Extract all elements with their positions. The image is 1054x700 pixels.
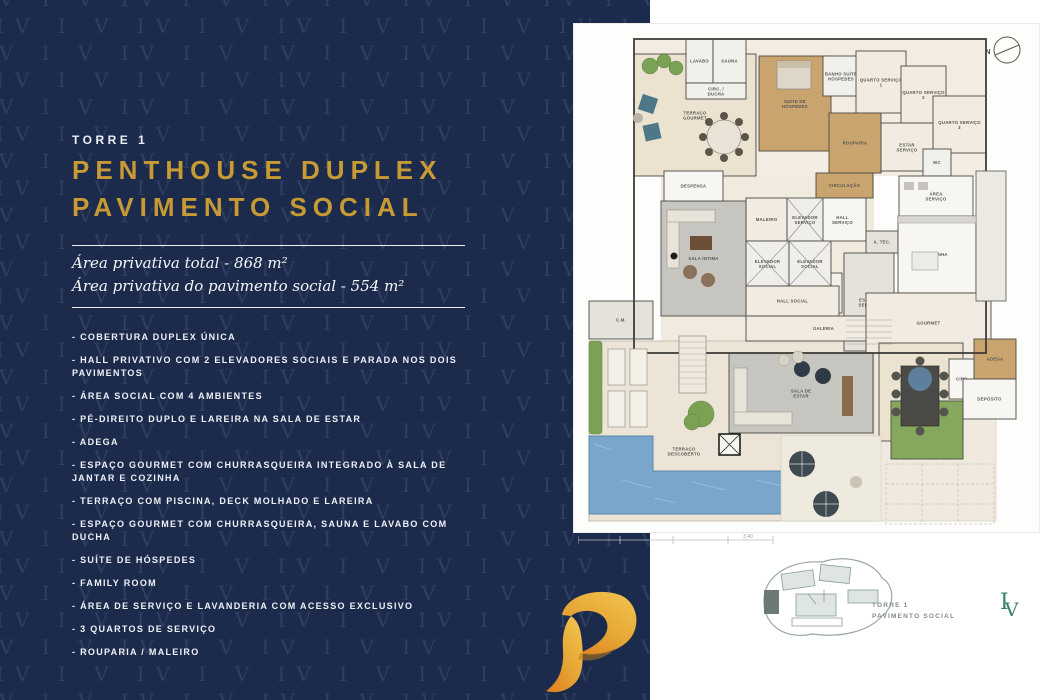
room-despensa: DESPENSA	[664, 171, 723, 201]
keyplan-floor: PAVIMENTO SOCIAL	[872, 611, 955, 622]
svg-text:CIRC. /DUCHA: CIRC. /DUCHA	[708, 87, 725, 97]
room-circ-ducha: CIRC. /DUCHA	[686, 83, 746, 99]
svg-text:GALERIA: GALERIA	[813, 326, 834, 331]
svg-text:N: N	[985, 49, 990, 56]
duplex-stair	[679, 336, 706, 393]
feature-item-9: SUÍTE DE HÓSPEDES	[72, 554, 477, 567]
room-maleiro: MALEIRO	[746, 198, 787, 241]
feature-item-12: 3 QUARTOS DE SERVIÇO	[72, 623, 477, 636]
svg-text:CIRCULAÇÃO: CIRCULAÇÃO	[829, 183, 861, 188]
keyplan-caption: TORRE 1 PAVIMENTO SOCIAL	[872, 600, 955, 622]
area-total: Área privativa total - 868 m²	[72, 252, 404, 275]
room-a-tec-: A. TEC.	[866, 231, 898, 253]
svg-text:SALA ÍNTIMA: SALA ÍNTIMA	[688, 256, 718, 261]
svg-text:DESPENSA: DESPENSA	[681, 184, 707, 189]
room-dep-sito: DEPÓSITO	[963, 379, 1016, 419]
feature-item-6: ESPAÇO GOURMET COM CHURRASQUEIRA INTEGRA…	[72, 459, 477, 485]
divider-top	[72, 245, 465, 246]
svg-text:ESTARSERVIÇO: ESTARSERVIÇO	[896, 143, 917, 153]
room-circula-o: CIRCULAÇÃO	[816, 173, 873, 198]
site-key-plan	[752, 550, 922, 645]
room-quarto-servi-o-1: QUARTO SERVIÇO1	[856, 51, 906, 113]
brand-monogram: IV	[1000, 592, 1022, 614]
room-lavabo: LAVABO	[686, 39, 713, 83]
svg-text:LAVABO: LAVABO	[690, 59, 709, 64]
svg-text:C.M.: C.M.	[616, 318, 626, 323]
svg-text:A. TEC.: A. TEC.	[873, 240, 890, 245]
gold-p-logo	[540, 583, 646, 700]
page-title-line1: PENTHOUSE DUPLEX	[72, 152, 443, 189]
room-quarto-servi-o-3: QUARTO SERVIÇO3	[933, 96, 986, 153]
feature-item-4: PÉ-DIREITO DUPLO E LAREIRA NA SALA DE ES…	[72, 413, 477, 426]
outdoor-dining	[781, 436, 881, 521]
room-adega: ADEGA	[974, 339, 1016, 379]
feature-item-10: FAMILY ROOM	[72, 577, 477, 590]
divider-bottom	[72, 307, 465, 308]
feature-item-7: TERRAÇO COM PISCINA, DECK MOLHADO E LARE…	[72, 495, 477, 508]
svg-text:WC: WC	[933, 160, 941, 165]
fireplace	[719, 434, 740, 455]
private-areas: Área privativa total - 868 m² Área priva…	[72, 252, 404, 298]
floorplan-sheet: TERRAÇOGOURMETLAVABOSAUNACIRC. /DUCHASUÍ…	[573, 23, 1040, 533]
feature-item-11: ÁREA DE SERVIÇO E LAVANDERIA COM ACESSO …	[72, 600, 477, 613]
feature-item-5: ADEGA	[72, 436, 477, 449]
feature-item-13: ROUPARIA / MALEIRO	[72, 646, 477, 659]
svg-text:SUÍTE DEHÓSPEDES: SUÍTE DEHÓSPEDES	[782, 99, 808, 109]
monogram-letter-v: V	[1005, 599, 1019, 621]
tower-eyebrow: TORRE 1	[72, 133, 148, 147]
floorplan-drawing: TERRAÇOGOURMETLAVABOSAUNACIRC. /DUCHASUÍ…	[574, 24, 1039, 532]
dimension-line: 3,40	[578, 533, 788, 547]
feature-item-3: ÁREA SOCIAL COM 4 AMBIENTES	[72, 390, 477, 403]
svg-text:SALA DEESTAR: SALA DEESTAR	[791, 389, 811, 399]
service-balcony	[976, 171, 1006, 301]
compass: N	[985, 37, 1020, 63]
brochure-page: IV I V IV I V IV I V IV I V IV I V IV I …	[0, 0, 1054, 700]
room-elevador-social: ELEVADORSOCIAL	[746, 241, 789, 286]
svg-text:DEPÓSITO: DEPÓSITO	[977, 397, 1002, 402]
room-elevador-social: ELEVADORSOCIAL	[789, 241, 831, 286]
svg-text:GOURMET: GOURMET	[917, 321, 941, 326]
feature-item-8: ESPAÇO GOURMET COM CHURRASQUEIRA, SAUNA …	[72, 518, 477, 544]
feature-item-2: HALL PRIVATIVO COM 2 ELEVADORES SOCIAIS …	[72, 354, 477, 380]
left-info-panel: IV I V IV I V IV I V IV I V IV I V IV I …	[0, 0, 650, 700]
svg-text:BANHO SUÍTEHÓSPEDES: BANHO SUÍTEHÓSPEDES	[825, 72, 857, 82]
svg-text:TERRAÇOGOURMET: TERRAÇOGOURMET	[683, 111, 707, 121]
svg-text:SAUNA: SAUNA	[721, 59, 738, 64]
svg-text:MALEIRO: MALEIRO	[756, 217, 778, 222]
room-rouparia: ROUPARIA	[829, 113, 881, 173]
room-elevador-servi-o: ELEVADORSERVIÇO	[787, 198, 823, 241]
room-wc: WC	[923, 149, 951, 176]
svg-text:HALL SOCIAL: HALL SOCIAL	[777, 299, 809, 304]
keyplan-tower: TORRE 1	[872, 600, 955, 611]
svg-text:ROUPARIA: ROUPARIA	[843, 141, 868, 146]
feature-item-1: COBERTURA DUPLEX ÚNICA	[72, 331, 477, 344]
feature-list: COBERTURA DUPLEX ÚNICAHALL PRIVATIVO COM…	[72, 331, 477, 669]
room-hall-social: HALL SOCIAL	[746, 286, 839, 316]
room-sauna: SAUNA	[713, 39, 746, 83]
room-banho-su-te-h-spedes: BANHO SUÍTEHÓSPEDES	[823, 56, 859, 96]
svg-text:ADEGA: ADEGA	[987, 357, 1004, 362]
svg-text:ELEVADORSERVIÇO: ELEVADORSERVIÇO	[792, 215, 818, 225]
highlighted-tower	[764, 590, 779, 614]
room-c-m-: C.M.	[589, 301, 653, 339]
dimension-value: 3,40	[743, 534, 753, 540]
suite-bed	[777, 61, 811, 89]
room-hall-servi-o: HALLSERVIÇO	[819, 198, 866, 241]
page-title: PENTHOUSE DUPLEX PAVIMENTO SOCIAL	[72, 152, 443, 226]
page-title-line2: PAVIMENTO SOCIAL	[72, 189, 443, 226]
area-social-floor: Área privativa do pavimento social - 554…	[72, 275, 404, 298]
